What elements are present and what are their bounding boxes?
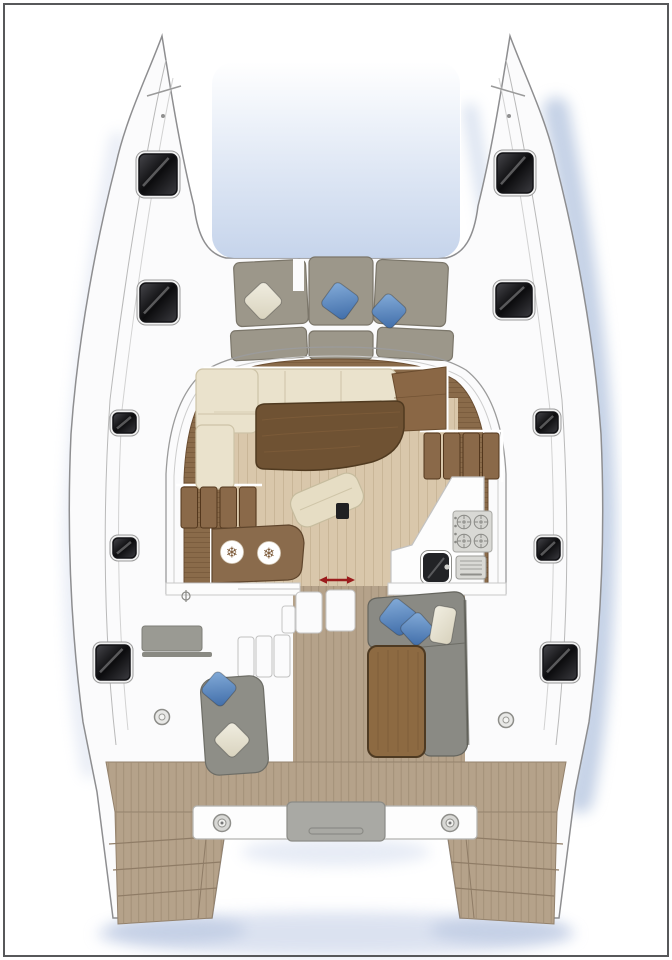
stove-knob-4 — [454, 541, 457, 544]
stbd-winch — [442, 815, 459, 832]
port-mid-porthole — [110, 410, 139, 436]
stbd-aft-cabin-hatch — [540, 642, 580, 683]
stbd-fwd-cabin-hatch-glass — [496, 283, 532, 317]
stbd-aft-porthole — [534, 535, 563, 563]
port-aft-porthole — [110, 535, 139, 561]
cockpit-locker-3 — [326, 590, 355, 631]
port-step-1 — [238, 637, 254, 677]
port-fwd-cabin-hatch-glass — [140, 283, 177, 322]
stbd-bow-fitting-dot — [507, 114, 511, 118]
port-deck-fitting-center — [159, 714, 165, 720]
stove-knob-1 — [454, 517, 457, 520]
cockpit-locker-1 — [282, 606, 295, 633]
port-cockpit-bench — [142, 626, 202, 651]
table-pedestal — [336, 503, 349, 519]
cockpit-locker-2 — [296, 592, 322, 633]
stbd-hull-stairs-tread-2 — [444, 433, 461, 479]
fwd-seat-bottom-mid — [309, 331, 373, 359]
fwd-seat-notch — [293, 259, 304, 291]
stove-burner-3-center — [462, 539, 466, 543]
stove-burner-3 — [457, 534, 471, 548]
stbd-deck-fitting-center — [503, 717, 509, 723]
stove-burner-1 — [457, 515, 471, 529]
snowflake-icon: ❄ — [226, 544, 239, 562]
port-winch-dot — [221, 822, 224, 825]
port-step-3 — [274, 635, 290, 677]
port-deck-fitting — [155, 710, 170, 725]
helm-seat-pad — [287, 802, 385, 841]
port-hull-stairs-tread-1 — [181, 487, 198, 528]
stove-burner-2-center — [479, 520, 483, 524]
stbd-winch-dot — [449, 822, 452, 825]
port-fwd-cabin-hatch — [137, 280, 180, 325]
catamaran-deck-plan-page: ❄❄ — [0, 0, 672, 960]
port-bench-rail — [142, 652, 212, 657]
port-hull-stairs-tread-2 — [201, 487, 218, 528]
port-hull-stairs-tread-4 — [240, 487, 257, 528]
port-bow-hatch-glass — [139, 154, 177, 195]
snowflake-icon: ❄ — [263, 545, 276, 563]
stbd-fwd-cabin-hatch — [493, 280, 535, 320]
stbd-hull-stairs-tread-3 — [463, 433, 480, 479]
stove-burner-1-center — [462, 520, 466, 524]
fridge-snowflake-2: ❄ — [258, 542, 281, 565]
port-hull-stairs-tread-3 — [220, 487, 237, 528]
trampoline-area — [212, 62, 460, 258]
stbd-bow-hatch-glass — [497, 153, 533, 193]
plan-layers: ❄❄ — [4, 4, 668, 956]
stove-burner-4-center — [479, 539, 483, 543]
stove-knob-3 — [454, 533, 457, 536]
cockpit-table — [368, 646, 425, 757]
stove-knob-2 — [454, 525, 457, 528]
stbd-bow-hatch — [494, 150, 536, 196]
catamaran-floor-plan: ❄❄ — [0, 0, 672, 960]
port-aft-cabin-hatch — [93, 642, 133, 683]
sink-faucet-dot — [444, 564, 449, 569]
fridge-snowflake-1: ❄ — [221, 541, 244, 564]
galley-oven — [456, 556, 486, 579]
salon-sofa-corner — [196, 369, 258, 433]
fwd-seat-bottom-right — [376, 327, 453, 361]
stove-burner-2 — [474, 515, 488, 529]
salon-sofa-arm — [196, 425, 234, 489]
port-aft-cabin-hatch-glass — [96, 645, 130, 680]
shadow-gap — [241, 838, 431, 866]
stbd-deck-fitting — [499, 713, 514, 728]
stbd-aft-cabin-hatch-glass — [543, 645, 577, 680]
port-bow-fitting-dot — [161, 114, 165, 118]
stbd-mid-porthole — [533, 409, 561, 436]
port-step-2 — [256, 636, 272, 677]
port-winch — [214, 815, 231, 832]
stbd-hull-stairs-tread-1 — [424, 433, 441, 479]
stbd-hull-stairs-tread-4 — [483, 433, 500, 479]
port-bow-hatch — [136, 151, 180, 198]
stove-burner-4 — [474, 534, 488, 548]
